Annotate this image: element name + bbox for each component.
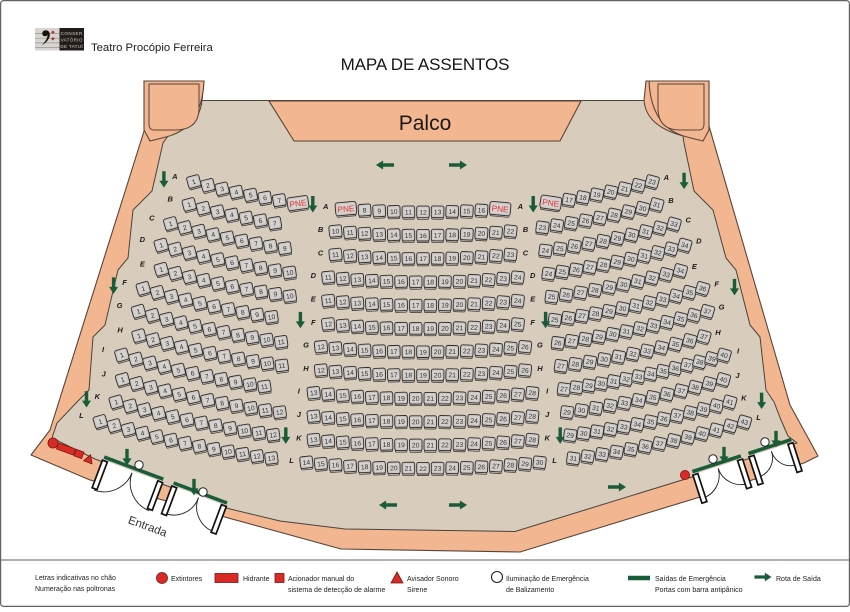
svg-text:C: C xyxy=(149,214,155,223)
svg-text:23: 23 xyxy=(506,252,514,260)
svg-text:19: 19 xyxy=(397,396,405,403)
svg-text:16: 16 xyxy=(477,207,485,215)
svg-text:21: 21 xyxy=(448,372,456,379)
svg-text:CONSER: CONSER xyxy=(61,31,83,36)
svg-text:29: 29 xyxy=(585,359,594,367)
svg-text:19: 19 xyxy=(419,349,427,356)
svg-text:26: 26 xyxy=(521,344,529,352)
svg-text:25: 25 xyxy=(506,369,514,377)
svg-text:33: 33 xyxy=(619,424,628,432)
svg-text:10: 10 xyxy=(240,427,249,435)
svg-text:14: 14 xyxy=(390,232,398,239)
svg-text:34: 34 xyxy=(612,449,621,457)
svg-text:24: 24 xyxy=(541,248,550,256)
svg-text:10: 10 xyxy=(247,405,256,413)
svg-text:F: F xyxy=(311,318,316,327)
svg-text:10: 10 xyxy=(390,209,398,216)
svg-text:17: 17 xyxy=(434,233,442,240)
svg-text:27: 27 xyxy=(492,463,500,470)
svg-text:28: 28 xyxy=(599,261,608,269)
svg-text:L: L xyxy=(289,456,294,465)
svg-text:20: 20 xyxy=(456,302,464,309)
svg-text:13: 13 xyxy=(310,390,318,398)
svg-text:29: 29 xyxy=(595,333,604,341)
svg-text:16: 16 xyxy=(375,372,383,379)
svg-text:27: 27 xyxy=(585,264,594,272)
svg-text:K: K xyxy=(296,434,302,443)
svg-text:31: 31 xyxy=(591,405,600,413)
svg-text:K: K xyxy=(95,392,101,401)
svg-text:12: 12 xyxy=(324,321,332,329)
svg-text:26: 26 xyxy=(499,416,507,424)
svg-text:Iluminação de Emergência: Iluminação de Emergência xyxy=(506,576,589,583)
svg-text:35: 35 xyxy=(626,446,635,454)
svg-text:L: L xyxy=(756,413,761,422)
svg-text:23: 23 xyxy=(499,276,507,284)
svg-text:20: 20 xyxy=(434,349,442,356)
svg-text:12: 12 xyxy=(276,409,285,417)
svg-text:18: 18 xyxy=(383,395,391,402)
svg-text:14: 14 xyxy=(324,391,332,399)
svg-text:C: C xyxy=(318,248,324,257)
svg-text:23: 23 xyxy=(485,324,493,332)
svg-text:10: 10 xyxy=(263,337,272,345)
svg-text:11: 11 xyxy=(325,298,333,306)
svg-text:10: 10 xyxy=(267,314,276,322)
svg-text:26: 26 xyxy=(521,367,529,375)
svg-text:17: 17 xyxy=(412,303,420,310)
svg-text:24: 24 xyxy=(513,274,521,282)
svg-text:14: 14 xyxy=(353,324,361,332)
svg-text:15: 15 xyxy=(339,393,347,401)
svg-text:K: K xyxy=(741,393,747,402)
svg-text:27: 27 xyxy=(514,438,522,446)
svg-text:B: B xyxy=(523,225,529,234)
svg-text:23: 23 xyxy=(456,395,464,402)
svg-text:G: G xyxy=(303,341,309,350)
svg-text:12: 12 xyxy=(317,367,325,375)
svg-text:Hidrante: Hidrante xyxy=(243,576,270,583)
svg-text:30: 30 xyxy=(535,459,543,467)
svg-text:13: 13 xyxy=(339,322,347,330)
svg-text:31: 31 xyxy=(593,428,602,436)
svg-text:28: 28 xyxy=(506,462,514,470)
svg-text:13: 13 xyxy=(310,437,318,445)
svg-text:B: B xyxy=(318,225,324,234)
svg-text:28: 28 xyxy=(591,310,600,318)
svg-text:21: 21 xyxy=(426,419,434,426)
svg-text:11: 11 xyxy=(332,252,340,260)
svg-text:26: 26 xyxy=(554,340,563,348)
svg-text:31: 31 xyxy=(569,455,578,463)
svg-text:25: 25 xyxy=(556,245,565,253)
svg-text:22: 22 xyxy=(463,348,471,355)
svg-text:VATÓRIO: VATÓRIO xyxy=(61,36,83,42)
svg-text:12: 12 xyxy=(346,253,354,261)
svg-text:33: 33 xyxy=(598,451,607,459)
svg-text:Avisador Sonoro: Avisador Sonoro xyxy=(407,576,459,583)
svg-text:24: 24 xyxy=(492,346,500,354)
svg-text:11: 11 xyxy=(278,363,286,371)
svg-text:Saídas de Emergência: Saídas de Emergência xyxy=(655,576,726,583)
svg-text:26: 26 xyxy=(570,243,579,251)
svg-text:17: 17 xyxy=(346,463,354,470)
svg-text:A: A xyxy=(663,173,669,182)
svg-text:15: 15 xyxy=(390,255,398,262)
svg-text:L: L xyxy=(552,456,557,465)
svg-text:18: 18 xyxy=(412,326,420,333)
svg-text:12: 12 xyxy=(339,299,347,307)
svg-text:23: 23 xyxy=(477,347,485,354)
svg-text:F: F xyxy=(122,278,127,287)
svg-text:de Balizamento: de Balizamento xyxy=(506,587,554,594)
svg-text:25: 25 xyxy=(485,394,493,401)
svg-text:21: 21 xyxy=(426,442,434,449)
svg-text:21: 21 xyxy=(470,278,478,285)
svg-text:G: G xyxy=(537,341,543,350)
svg-text:14: 14 xyxy=(346,370,354,378)
svg-text:D: D xyxy=(696,237,702,246)
svg-text:H: H xyxy=(715,328,721,337)
svg-text:13: 13 xyxy=(434,209,442,216)
svg-text:18: 18 xyxy=(383,418,391,425)
svg-text:17: 17 xyxy=(368,441,376,448)
svg-text:D: D xyxy=(311,271,317,280)
svg-text:H: H xyxy=(537,364,543,373)
svg-text:sistema de detecção de alarme: sistema de detecção de alarme xyxy=(288,587,385,594)
svg-text:13: 13 xyxy=(310,413,318,421)
svg-text:23: 23 xyxy=(477,371,485,378)
svg-text:11: 11 xyxy=(261,407,269,415)
svg-text:C: C xyxy=(523,248,529,257)
svg-text:33: 33 xyxy=(620,400,629,408)
svg-text:29: 29 xyxy=(585,382,594,390)
svg-text:G: G xyxy=(719,303,725,312)
svg-text:22: 22 xyxy=(470,325,478,332)
svg-text:22: 22 xyxy=(441,396,449,403)
svg-text:29: 29 xyxy=(563,409,572,417)
svg-text:26: 26 xyxy=(562,292,571,300)
svg-text:20: 20 xyxy=(477,231,485,238)
svg-text:31: 31 xyxy=(609,378,618,386)
svg-text:10: 10 xyxy=(331,228,339,236)
svg-text:H: H xyxy=(117,326,123,335)
svg-text:14: 14 xyxy=(324,438,332,446)
svg-text:12: 12 xyxy=(317,344,325,352)
svg-text:Portas com barra antipânico: Portas com barra antipânico xyxy=(655,587,743,594)
svg-text:28: 28 xyxy=(571,361,580,369)
svg-text:24: 24 xyxy=(470,441,478,448)
svg-text:17: 17 xyxy=(397,326,405,333)
svg-text:17: 17 xyxy=(565,197,574,205)
svg-text:15: 15 xyxy=(405,233,413,240)
svg-text:18: 18 xyxy=(448,232,456,239)
svg-text:11: 11 xyxy=(325,274,333,282)
svg-text:14: 14 xyxy=(448,209,456,216)
svg-text:17: 17 xyxy=(419,256,427,263)
svg-text:10: 10 xyxy=(246,381,255,389)
svg-text:16: 16 xyxy=(353,417,361,424)
svg-text:18: 18 xyxy=(405,372,413,379)
svg-text:L: L xyxy=(79,411,84,420)
svg-text:36: 36 xyxy=(641,443,650,451)
svg-text:18: 18 xyxy=(578,194,587,202)
svg-text:10: 10 xyxy=(224,448,233,456)
svg-text:24: 24 xyxy=(499,323,507,331)
svg-text:29: 29 xyxy=(605,284,614,292)
svg-text:20: 20 xyxy=(456,279,464,286)
svg-text:27: 27 xyxy=(595,215,604,223)
svg-text:PNE: PNE xyxy=(491,203,509,214)
svg-text:28: 28 xyxy=(581,336,590,344)
svg-text:16: 16 xyxy=(332,462,340,470)
svg-text:16: 16 xyxy=(397,302,405,309)
svg-text:24: 24 xyxy=(513,298,521,306)
svg-text:20: 20 xyxy=(463,255,471,262)
svg-text:32: 32 xyxy=(622,376,631,384)
svg-text:27: 27 xyxy=(514,391,522,399)
svg-text:A: A xyxy=(171,172,177,181)
svg-text:13: 13 xyxy=(353,300,361,308)
svg-text:8: 8 xyxy=(363,207,367,214)
svg-text:Palco: Palco xyxy=(399,112,452,135)
svg-text:24: 24 xyxy=(552,222,561,230)
svg-text:19: 19 xyxy=(375,465,383,472)
svg-text:13: 13 xyxy=(353,277,361,285)
svg-text:12: 12 xyxy=(253,453,262,461)
svg-text:22: 22 xyxy=(441,419,449,426)
svg-text:22: 22 xyxy=(485,277,493,285)
svg-text:17: 17 xyxy=(390,349,398,356)
svg-text:29: 29 xyxy=(566,432,575,440)
svg-text:27: 27 xyxy=(576,289,585,297)
svg-text:16: 16 xyxy=(397,279,405,286)
svg-text:21: 21 xyxy=(470,301,478,308)
svg-text:22: 22 xyxy=(441,442,449,449)
svg-text:19: 19 xyxy=(426,326,434,333)
svg-text:22: 22 xyxy=(485,300,493,308)
svg-text:25: 25 xyxy=(514,321,522,329)
svg-text:30: 30 xyxy=(600,356,609,364)
svg-text:24: 24 xyxy=(544,271,553,279)
svg-text:15: 15 xyxy=(361,347,369,354)
svg-text:14: 14 xyxy=(302,459,310,467)
svg-text:17: 17 xyxy=(368,418,376,425)
svg-text:21: 21 xyxy=(477,254,485,261)
svg-text:22: 22 xyxy=(419,466,427,473)
svg-text:26: 26 xyxy=(499,393,507,401)
svg-text:28: 28 xyxy=(572,384,581,392)
svg-text:29: 29 xyxy=(605,308,614,316)
svg-text:25: 25 xyxy=(463,465,471,472)
svg-text:18: 18 xyxy=(383,442,391,449)
svg-text:18: 18 xyxy=(434,256,442,263)
svg-text:25: 25 xyxy=(485,417,493,424)
svg-text:34: 34 xyxy=(633,421,642,429)
svg-text:18: 18 xyxy=(405,349,413,356)
svg-text:Sirene: Sirene xyxy=(407,587,427,594)
svg-text:13: 13 xyxy=(375,232,383,239)
svg-text:17: 17 xyxy=(390,372,398,379)
svg-text:Teatro Procópio Ferreira: Teatro Procópio Ferreira xyxy=(91,42,214,54)
svg-text:16: 16 xyxy=(375,348,383,355)
svg-text:10: 10 xyxy=(286,293,295,301)
svg-text:26: 26 xyxy=(572,266,581,274)
svg-text:25: 25 xyxy=(506,345,514,353)
svg-text:27: 27 xyxy=(578,313,587,321)
svg-text:16: 16 xyxy=(383,325,391,332)
svg-text:28: 28 xyxy=(590,287,599,295)
svg-text:21: 21 xyxy=(456,325,464,332)
svg-text:22: 22 xyxy=(506,228,514,236)
svg-text:19: 19 xyxy=(397,442,405,449)
svg-text:25: 25 xyxy=(547,294,556,302)
svg-text:11: 11 xyxy=(255,430,263,438)
svg-text:21: 21 xyxy=(426,396,434,403)
svg-text:23: 23 xyxy=(456,442,464,449)
svg-text:28: 28 xyxy=(528,390,536,398)
svg-text:24: 24 xyxy=(448,465,456,472)
svg-text:24: 24 xyxy=(470,395,478,402)
svg-text:22: 22 xyxy=(463,372,471,379)
svg-text:A: A xyxy=(517,202,523,211)
svg-text:19: 19 xyxy=(441,279,449,286)
svg-text:24: 24 xyxy=(492,370,500,378)
svg-text:12: 12 xyxy=(419,210,427,217)
svg-text:19: 19 xyxy=(441,302,449,309)
svg-text:30: 30 xyxy=(579,430,588,438)
svg-text:20: 20 xyxy=(441,326,449,333)
svg-text:28: 28 xyxy=(599,238,608,246)
svg-text:Rota de Saída: Rota de Saída xyxy=(776,576,821,583)
svg-text:14: 14 xyxy=(368,278,376,285)
svg-text:28: 28 xyxy=(528,437,536,445)
svg-text:MAPA DE ASSENTOS: MAPA DE ASSENTOS xyxy=(341,55,510,74)
svg-text:26: 26 xyxy=(564,315,573,323)
svg-text:20: 20 xyxy=(412,396,420,403)
svg-text:F: F xyxy=(714,280,719,289)
svg-text:D: D xyxy=(140,235,146,244)
svg-text:18: 18 xyxy=(361,464,369,471)
svg-text:G: G xyxy=(117,301,123,310)
svg-text:12: 12 xyxy=(361,231,369,238)
svg-text:11: 11 xyxy=(239,451,247,459)
svg-text:14: 14 xyxy=(375,255,383,262)
svg-text:23: 23 xyxy=(538,224,547,232)
svg-text:Letras indicativas no chão: Letras indicativas no chão xyxy=(35,575,116,582)
svg-text:15: 15 xyxy=(339,416,347,424)
svg-text:F: F xyxy=(530,318,535,327)
svg-text:32: 32 xyxy=(583,453,592,461)
svg-text:15: 15 xyxy=(361,371,369,378)
svg-text:15: 15 xyxy=(463,208,471,215)
svg-text:32: 32 xyxy=(606,402,615,410)
svg-text:10: 10 xyxy=(286,269,295,277)
svg-text:B: B xyxy=(167,195,173,204)
svg-text:30: 30 xyxy=(608,331,617,339)
svg-text:19: 19 xyxy=(448,255,456,262)
svg-text:27: 27 xyxy=(514,415,522,423)
svg-text:D: D xyxy=(530,271,536,280)
svg-text:13: 13 xyxy=(332,345,340,353)
svg-text:25: 25 xyxy=(485,440,493,447)
svg-text:19: 19 xyxy=(397,419,405,426)
svg-text:17: 17 xyxy=(368,395,376,402)
svg-text:18: 18 xyxy=(426,303,434,310)
svg-text:23: 23 xyxy=(499,299,507,307)
svg-text:DE TATUÍ: DE TATUÍ xyxy=(60,43,83,49)
svg-text:15: 15 xyxy=(339,439,347,447)
svg-text:10: 10 xyxy=(263,360,272,368)
svg-text:11: 11 xyxy=(346,230,354,238)
svg-text:15: 15 xyxy=(383,279,391,286)
svg-text:25: 25 xyxy=(550,317,559,325)
svg-text:15: 15 xyxy=(368,325,376,332)
svg-text:Acionador manual do: Acionador manual do xyxy=(288,576,354,583)
svg-text:11: 11 xyxy=(277,339,285,347)
svg-text:12: 12 xyxy=(269,432,278,440)
svg-text:15: 15 xyxy=(317,461,325,469)
svg-text:14: 14 xyxy=(346,346,354,354)
svg-text:16: 16 xyxy=(419,233,427,240)
svg-text:16: 16 xyxy=(353,440,361,447)
svg-text:31: 31 xyxy=(614,353,623,361)
svg-text:27: 27 xyxy=(560,386,569,394)
svg-text:14: 14 xyxy=(324,415,332,423)
svg-text:Extintores: Extintores xyxy=(171,576,203,583)
svg-text:20: 20 xyxy=(412,419,420,426)
svg-text:20: 20 xyxy=(412,442,420,449)
svg-text:29: 29 xyxy=(521,461,529,469)
svg-text:32: 32 xyxy=(606,426,615,434)
svg-text:16: 16 xyxy=(405,256,413,263)
svg-text:27: 27 xyxy=(557,363,566,371)
svg-text:26: 26 xyxy=(499,439,507,447)
svg-text:25: 25 xyxy=(558,269,567,277)
svg-text:19: 19 xyxy=(463,232,471,239)
svg-text:11: 11 xyxy=(405,209,412,216)
svg-text:15: 15 xyxy=(383,302,391,309)
svg-text:17: 17 xyxy=(412,279,420,286)
svg-text:28: 28 xyxy=(528,413,536,421)
svg-text:B: B xyxy=(668,196,674,205)
svg-text:27: 27 xyxy=(584,240,593,248)
svg-text:26: 26 xyxy=(581,217,590,225)
svg-text:PNE: PNE xyxy=(337,203,355,214)
svg-text:21: 21 xyxy=(492,230,500,238)
svg-text:13: 13 xyxy=(267,455,276,463)
svg-text:C: C xyxy=(685,215,691,224)
svg-text:21: 21 xyxy=(405,466,413,473)
svg-text:13: 13 xyxy=(332,369,340,377)
svg-text:12: 12 xyxy=(339,276,347,284)
svg-text:14: 14 xyxy=(368,301,376,308)
svg-text:18: 18 xyxy=(426,279,434,286)
svg-text:Numeração nas poltronas: Numeração nas poltronas xyxy=(35,586,116,593)
svg-text:19: 19 xyxy=(419,373,427,380)
svg-text:27: 27 xyxy=(567,338,576,346)
svg-text:30: 30 xyxy=(597,380,606,388)
svg-text:13: 13 xyxy=(361,254,369,261)
svg-text:20: 20 xyxy=(434,372,442,379)
svg-text:20: 20 xyxy=(390,465,398,472)
svg-text:23: 23 xyxy=(456,418,464,425)
svg-text:23: 23 xyxy=(434,466,442,473)
svg-text:25: 25 xyxy=(567,220,576,228)
svg-text:30: 30 xyxy=(577,407,586,415)
svg-text:21: 21 xyxy=(448,349,456,356)
svg-text:11: 11 xyxy=(261,383,269,391)
